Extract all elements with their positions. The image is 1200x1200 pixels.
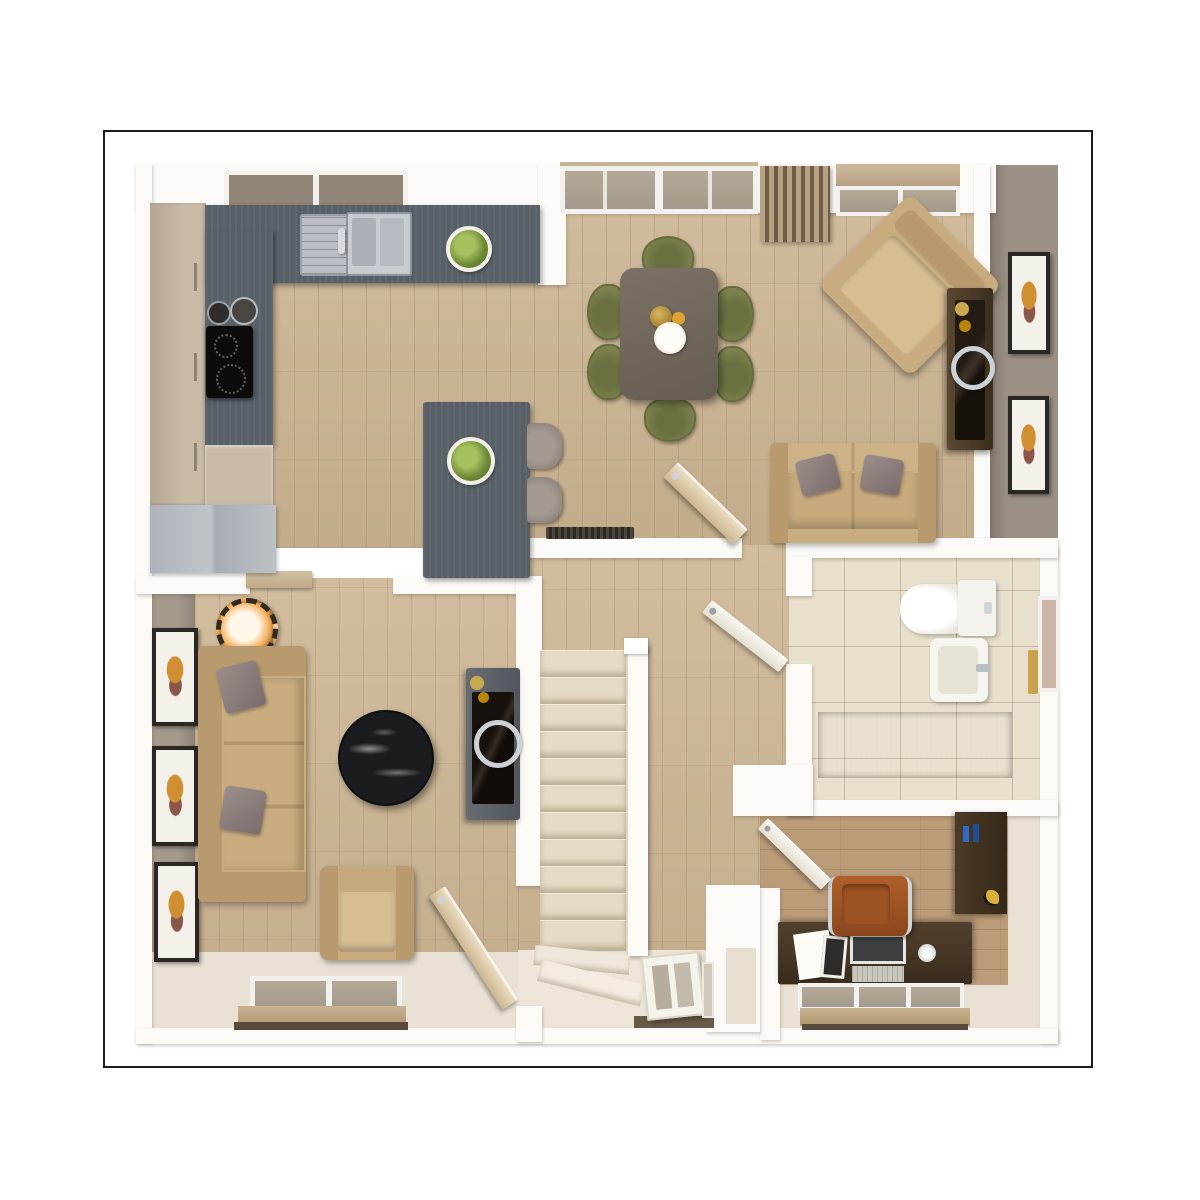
stair-newel — [624, 638, 648, 654]
dining-chair-right-2 — [714, 346, 754, 402]
island-plant — [447, 437, 495, 485]
media-unit-gold-dish — [470, 676, 484, 690]
hob-burner — [216, 364, 246, 394]
stair-tread — [540, 758, 626, 786]
kitchen-tall-cabinets — [150, 203, 206, 505]
door-handle — [708, 606, 718, 616]
stair-tread — [540, 677, 626, 705]
sink-basins — [346, 212, 412, 276]
dining-chair-bottom — [644, 398, 696, 442]
desk-tablet — [820, 935, 848, 979]
understair-block — [733, 765, 813, 816]
floorplan-canvas — [0, 0, 1200, 1200]
french-door-stile-right — [708, 171, 712, 209]
toilet-cistern — [958, 580, 996, 636]
sink-basin-right — [380, 218, 404, 266]
front-door — [641, 951, 705, 1021]
sofa-pillow — [219, 785, 267, 835]
toilet-bowl — [900, 584, 964, 634]
hob-burner — [214, 334, 238, 358]
bookcase-books — [963, 826, 969, 842]
lounge-window-sill — [234, 1022, 408, 1030]
family-loveseat — [770, 443, 936, 543]
right-window-pelmet — [836, 164, 960, 186]
front-door-sidelight — [702, 962, 714, 1018]
front-door-glazing — [652, 964, 673, 1009]
wall-picture-left-3 — [154, 862, 199, 962]
kitchen-lounge-wall-b — [393, 576, 520, 594]
bookcase-bird-ornament — [983, 890, 999, 906]
lounge-hall-wall-lower — [516, 1006, 542, 1042]
lounge-sofa — [198, 646, 306, 902]
slatted-radiator-panel — [760, 166, 830, 242]
basin-tap — [976, 664, 990, 672]
armchair-arm-left — [320, 866, 338, 960]
wall-picture-left-1 — [152, 628, 198, 726]
stair-tread — [540, 839, 626, 867]
stair-tread — [540, 866, 626, 894]
laptop-screen — [850, 934, 906, 964]
study-window-mullion — [906, 987, 911, 1007]
cabinet-handle — [194, 443, 197, 471]
bathroom-west-wall-upper — [786, 556, 812, 596]
study-window-mullion — [854, 987, 859, 1007]
study-west-wall — [760, 888, 780, 1040]
picture-art — [163, 768, 187, 821]
lounge-armchair — [320, 866, 414, 960]
saucepan — [207, 301, 231, 325]
towel-rail — [1028, 650, 1038, 694]
sideboard-gold-dish — [959, 320, 971, 332]
sink-basin-left — [352, 218, 376, 266]
laptop-keyboard — [852, 966, 904, 982]
dining-table — [620, 268, 718, 400]
cabinet-handle — [194, 353, 197, 381]
bottom-exterior-wall — [136, 1028, 1058, 1044]
sideboard-silver-ring — [951, 346, 995, 390]
study-right-wall-face — [1008, 815, 1042, 1032]
media-sideboard — [947, 288, 993, 450]
bathroom-basin — [930, 638, 988, 702]
bathroom-south-wall — [786, 800, 1058, 816]
door-handle — [763, 824, 771, 832]
lounge-media-unit — [466, 668, 520, 820]
armchair-back — [338, 866, 396, 890]
kitchen-island-table — [423, 402, 530, 578]
kitchen-appliance-unit — [150, 505, 276, 573]
study-window-sill — [802, 1024, 968, 1030]
stair-tread — [540, 704, 626, 732]
nook-recess — [726, 948, 756, 1024]
picture-art — [1018, 418, 1039, 470]
door-handle — [436, 895, 447, 906]
table-platter — [654, 322, 686, 354]
loveseat-arm-right — [918, 443, 936, 543]
picture-art — [1018, 275, 1040, 330]
wall-picture-right-1 — [1008, 252, 1050, 354]
sink-faucet — [338, 228, 345, 254]
sofa-arm-bottom — [222, 872, 306, 902]
hall-wall-radiator — [546, 527, 634, 539]
sideboard-gold-dish — [955, 302, 969, 316]
island-stool — [527, 423, 562, 469]
office-chair — [828, 876, 912, 936]
lounge-window-mullion — [326, 981, 332, 1007]
stair-banister — [626, 644, 648, 956]
stair-tread — [540, 785, 626, 813]
counter-plant — [446, 226, 492, 272]
office-chair-seat — [842, 884, 890, 924]
loveseat-arm-left — [770, 443, 788, 543]
loveseat-pillow — [859, 454, 905, 496]
stair-tread — [540, 893, 626, 921]
wall-picture-right-2 — [1008, 396, 1049, 494]
desk-glass — [918, 944, 936, 962]
stair-tread — [540, 812, 626, 840]
picture-art — [165, 884, 189, 937]
study-bookcase — [955, 812, 1007, 914]
media-unit-silver-ring — [474, 720, 522, 768]
french-doors — [560, 166, 758, 214]
armchair-seat — [338, 892, 396, 952]
media-unit-gold-dish — [478, 692, 489, 703]
study-window — [798, 983, 964, 1011]
bookcase-books — [973, 824, 979, 842]
bathtub — [818, 712, 1012, 778]
picture-art — [163, 650, 187, 702]
stair-tread — [540, 650, 626, 678]
front-door-glazing — [674, 962, 695, 1007]
french-door-stile-left — [603, 171, 607, 209]
french-doors-mullion — [655, 171, 663, 209]
cabinet-handle — [194, 263, 197, 291]
toilet-flush-button — [984, 602, 992, 614]
door-handle — [670, 471, 681, 482]
hall-top-wall — [516, 538, 742, 558]
dining-chair-right-1 — [714, 286, 754, 342]
kitchen-base-cabinet — [205, 445, 273, 507]
kitchen-lounge-wall-a — [136, 576, 250, 594]
lounge-console-shelf — [246, 571, 312, 588]
coffee-table — [338, 710, 434, 806]
basin-bowl — [938, 646, 978, 694]
stair-tread — [540, 731, 626, 759]
island-stool — [527, 477, 562, 523]
wall-picture-left-2 — [152, 746, 198, 846]
armchair-arm-right — [396, 866, 414, 960]
bathroom-window — [1038, 596, 1060, 692]
saucepan — [230, 297, 258, 325]
induction-hob — [206, 326, 253, 398]
kitchen-window-mullion — [313, 175, 319, 207]
